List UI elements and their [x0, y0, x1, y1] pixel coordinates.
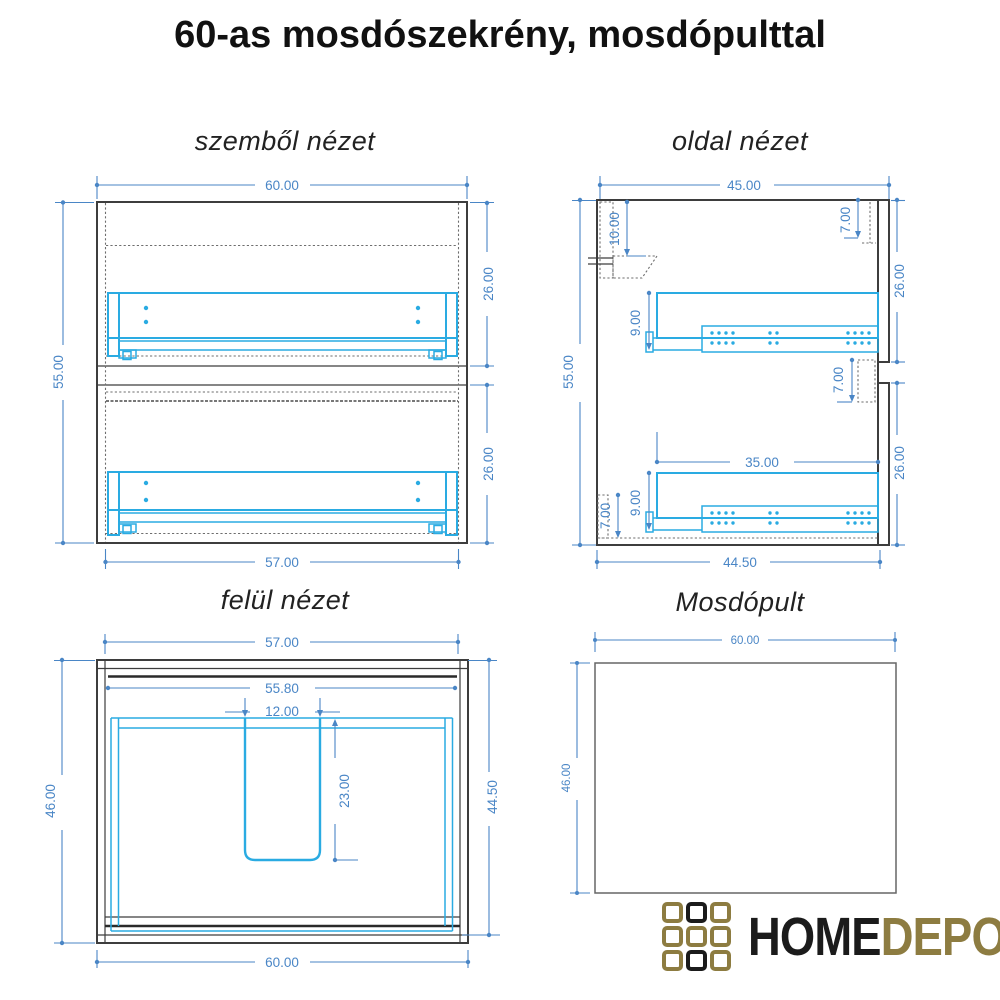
- dim-side-upper-section-height: 26.00: [892, 264, 907, 298]
- dim-top-overall-depth: 46.00: [43, 784, 58, 818]
- dim-top-overall-width: 60.00: [265, 955, 299, 970]
- dim-side-back-rail-top: 7.00: [838, 207, 853, 233]
- homedepo-logo: HOMEDEPO: [662, 902, 1000, 972]
- drawing-canvas: 60.00: [0, 0, 1000, 1000]
- dim-top-cutout-width: 12.00: [265, 704, 299, 719]
- dim-front-upper-drawer-height: 26.00: [481, 267, 496, 301]
- dim-side-divider-gap: 7.00: [831, 367, 846, 393]
- dim-side-overall-depth: 45.00: [727, 178, 761, 193]
- dim-side-plinth-height: 7.00: [598, 503, 613, 529]
- front-view-drawing: 60.00: [51, 176, 496, 570]
- dim-side-overall-height: 55.00: [561, 355, 576, 389]
- logo-text-home: HOME: [748, 907, 881, 967]
- side-view-drawing: 45.00 10.00 7.00: [561, 176, 907, 570]
- dim-side-bracket-offset: 10.00: [607, 212, 622, 246]
- dim-top-cutout-depth: 23.00: [337, 774, 352, 808]
- dim-top-inner-width: 55.80: [265, 681, 299, 696]
- dim-front-carcass-width: 57.00: [265, 555, 299, 570]
- logo-text-depo: DEPO: [881, 907, 1000, 967]
- dim-front-lower-drawer-height: 26.00: [481, 447, 496, 481]
- technical-drawing-page: 60-as mosdószekrény, mosdópulttal szembő…: [0, 0, 1000, 1000]
- dim-side-carcass-depth: 44.50: [723, 555, 757, 570]
- dim-counter-depth: 46.00: [561, 764, 573, 793]
- dim-front-overall-width: 60.00: [265, 178, 299, 193]
- dim-top-carcass-depth: 44.50: [485, 780, 500, 814]
- dim-side-slide-length: 35.00: [745, 455, 779, 470]
- logo-wordmark: HOMEDEPO: [748, 910, 1000, 964]
- logo-grid-icon: [662, 902, 732, 972]
- counter-view-drawing: 60.00 46.00: [561, 632, 897, 895]
- top-view-drawing: 57.00 55.80: [43, 634, 500, 970]
- dim-front-overall-height: 55.00: [51, 355, 66, 389]
- dim-side-lower-section-height: 26.00: [892, 446, 907, 480]
- dim-counter-width: 60.00: [731, 635, 760, 647]
- dim-side-lower-rail-offset: 9.00: [628, 490, 643, 516]
- dim-side-upper-rail-offset: 9.00: [628, 310, 643, 336]
- dim-top-carcass-width: 57.00: [265, 635, 299, 650]
